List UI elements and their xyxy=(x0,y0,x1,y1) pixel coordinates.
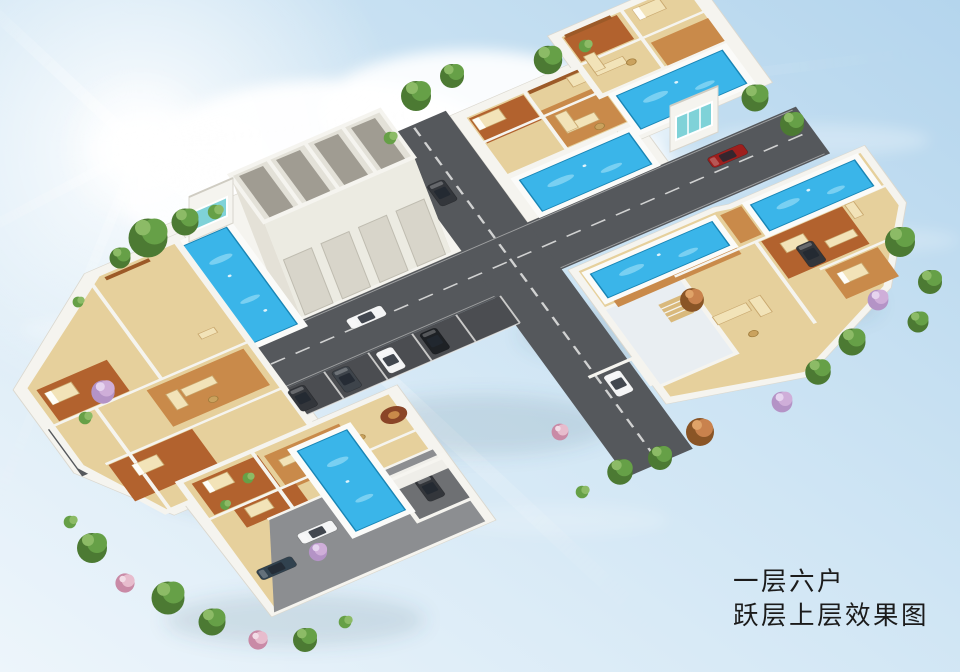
caption-line-1: 一层六户 xyxy=(733,568,845,596)
caption-line-2: 跃层上层效果图 xyxy=(733,602,929,630)
effect-render: 一层六户 跃层上层效果图 xyxy=(0,0,960,672)
render-canvas: 一层六户 跃层上层效果图 xyxy=(0,0,960,672)
